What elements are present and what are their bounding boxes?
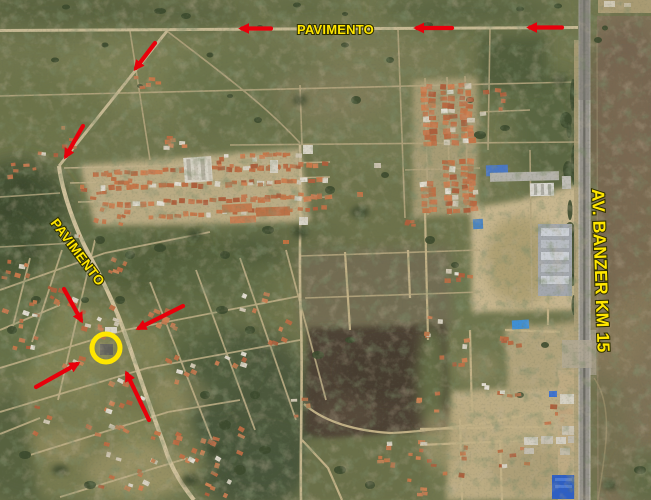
svg-text:PAVIMENTO: PAVIMENTO — [297, 22, 374, 37]
